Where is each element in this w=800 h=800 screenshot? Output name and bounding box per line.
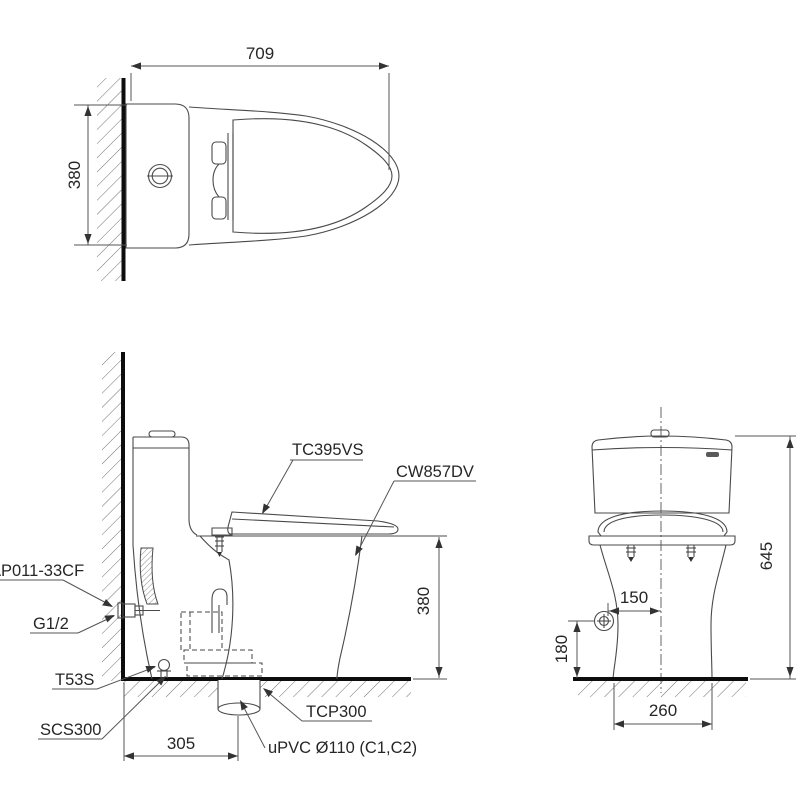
dim-text-260: 260 xyxy=(649,701,677,720)
front-view: 150 180 260 645 xyxy=(552,407,796,730)
dim-text-150: 150 xyxy=(620,588,648,607)
label-text-seal: SCS300 xyxy=(40,721,101,739)
tank-outline-front xyxy=(592,430,732,513)
floor-bolt-side xyxy=(157,660,171,679)
label-bowl-model: CW857DV xyxy=(352,463,476,558)
seat-hinge-top xyxy=(212,133,233,220)
top-view: 709 380 xyxy=(65,44,399,281)
tank-outline-side xyxy=(133,431,197,545)
label-text-bowl: CW857DV xyxy=(396,463,474,481)
toilet-installation-drawing: 709 380 xyxy=(0,0,800,800)
flush-button-top xyxy=(147,165,173,188)
brand-logo-mark xyxy=(706,452,719,457)
bowl-outline-side xyxy=(133,536,447,679)
label-text-pipe: uPVC Ø110 (C1,C2) xyxy=(268,739,417,757)
label-text-hose: AP011-33CF xyxy=(0,562,84,580)
label-text-seat: TC395VS xyxy=(292,441,364,459)
concealed-trap-side xyxy=(181,589,262,676)
seat-outline-front xyxy=(589,511,735,545)
dim-text-645: 645 xyxy=(757,542,776,570)
dimension-total-height: 645 xyxy=(735,436,796,679)
label-text-flange: TCP300 xyxy=(306,703,367,721)
technical-drawing-page: 709 380 xyxy=(0,0,800,800)
dim-text-380-side: 380 xyxy=(414,587,433,615)
dim-text-180: 180 xyxy=(552,635,571,663)
label-text-bolt: T53S xyxy=(55,671,94,689)
wall-hatching-top-view xyxy=(97,78,122,281)
seat-lid-outline-top xyxy=(233,119,392,234)
floor-hatching-side-view xyxy=(123,681,411,697)
dim-text-305: 305 xyxy=(167,734,195,753)
supply-hose-side xyxy=(140,548,158,604)
dimension-top-width: 709 xyxy=(131,44,389,170)
dim-text-380-top: 380 xyxy=(65,161,84,189)
tank-lid-button-side xyxy=(149,431,175,437)
bowl-outline-top xyxy=(189,107,399,245)
label-text-thread: G1/2 xyxy=(33,615,69,633)
dimension-supply-height: 180 xyxy=(552,621,595,678)
floor-hatching-front-view xyxy=(578,681,746,697)
wall-hatching-side-view xyxy=(102,352,121,681)
side-view: 380 305 TC395VS CW857DV AP011-33CF xyxy=(0,352,476,761)
dimension-seat-height: 380 xyxy=(413,537,447,679)
seat-outline-side xyxy=(212,512,398,557)
label-supply-hose: AP011-33CF xyxy=(0,562,115,610)
drain-pipe-side xyxy=(218,680,260,715)
water-supply-point xyxy=(595,612,614,631)
label-seat-model: TC395VS xyxy=(259,441,364,516)
seat-bolt-side xyxy=(215,537,224,557)
dim-text-709: 709 xyxy=(246,44,274,63)
